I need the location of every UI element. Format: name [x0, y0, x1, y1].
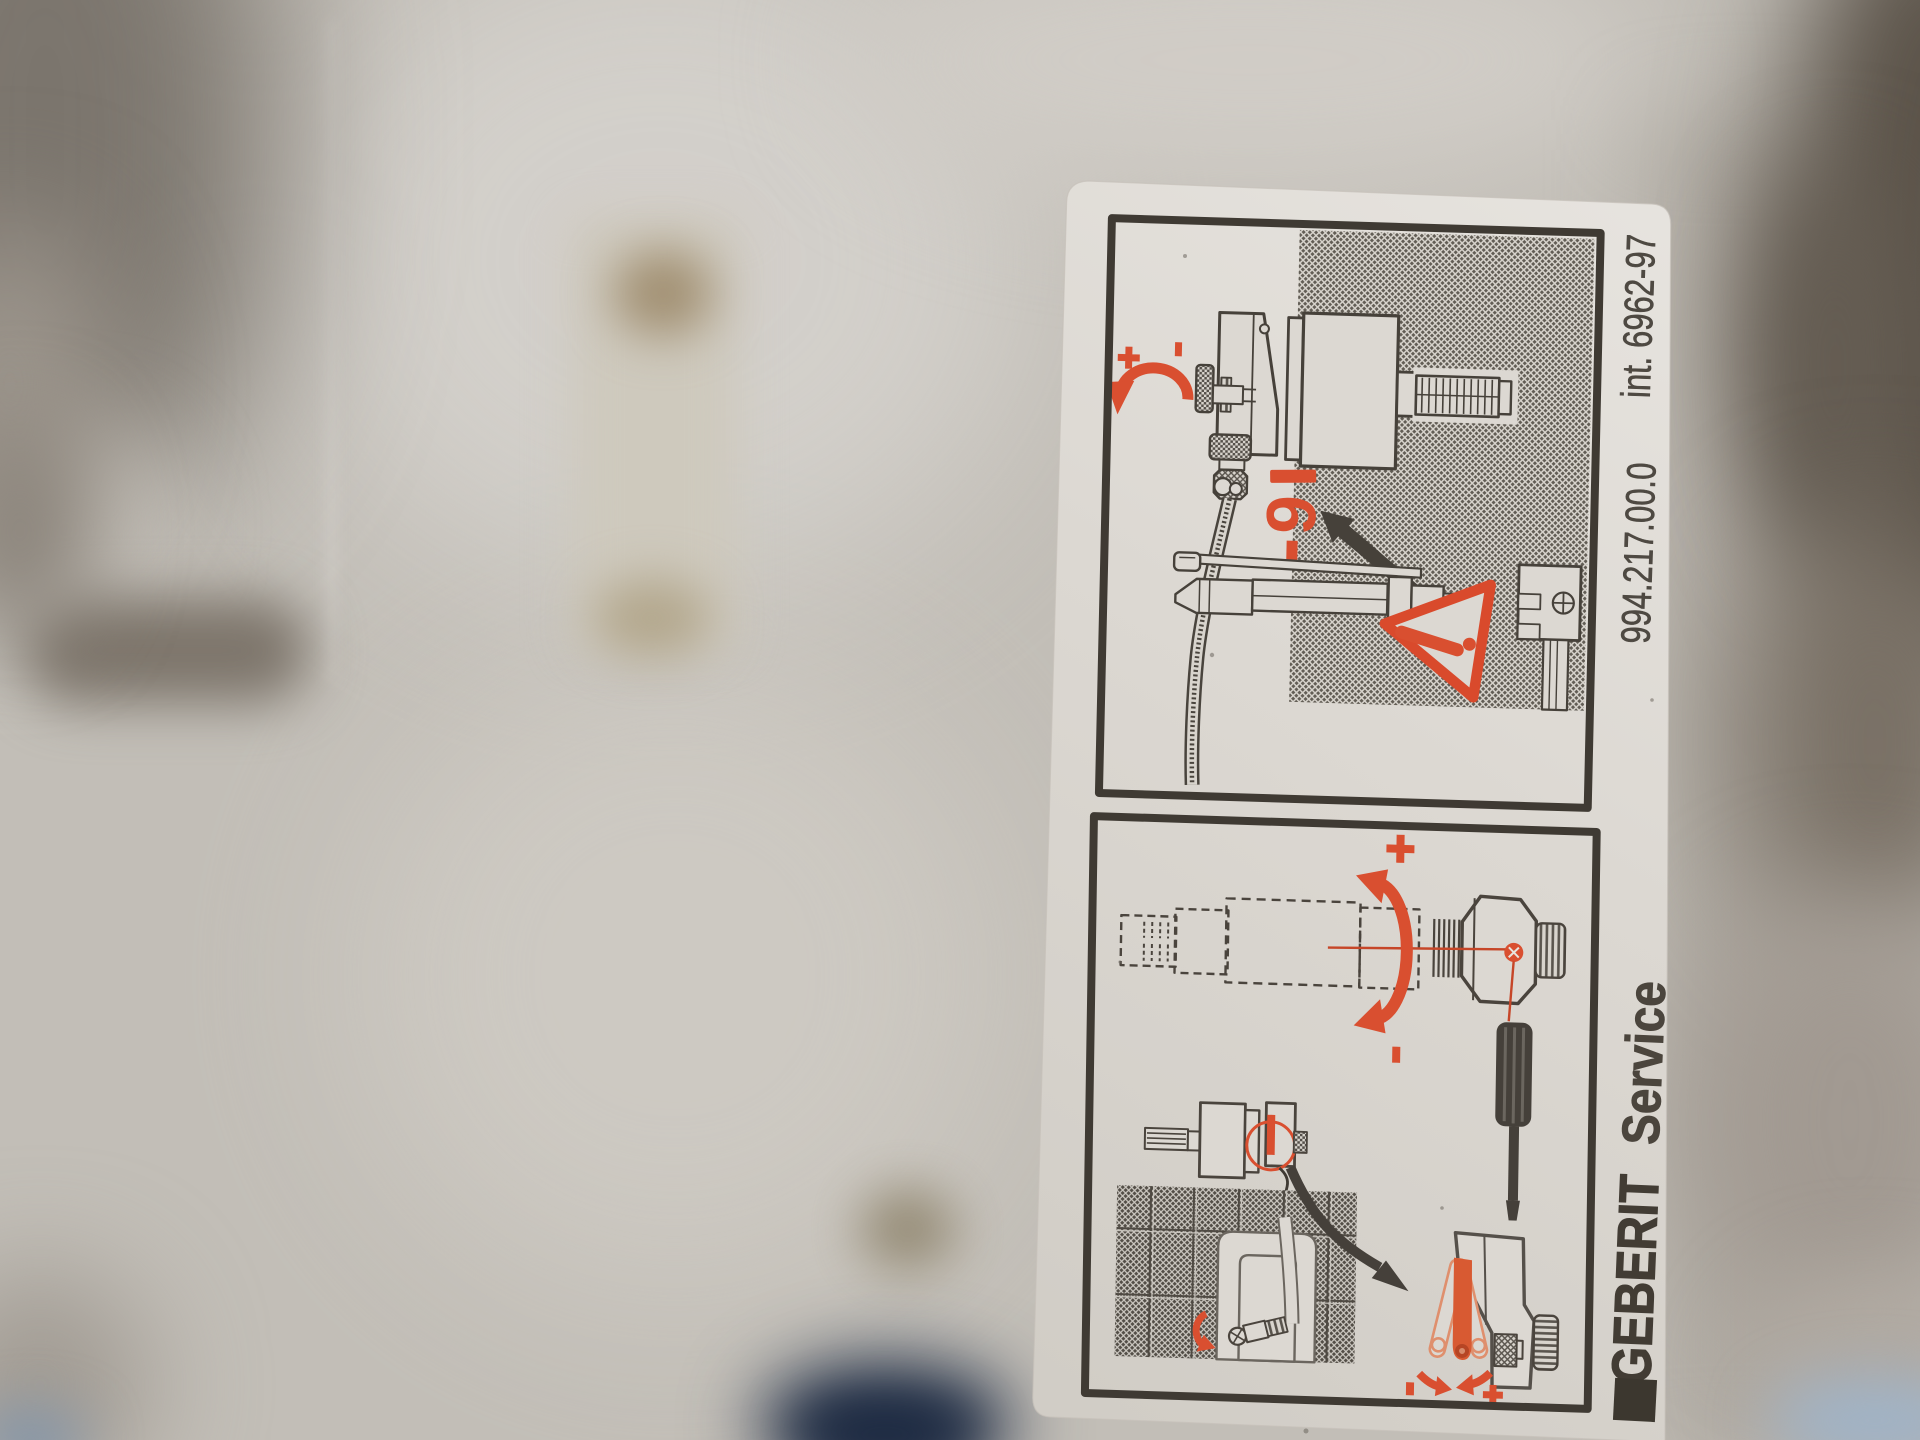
svg-text:Service: Service: [1611, 980, 1678, 1146]
svg-text:GEBERIT: GEBERIT: [1599, 1173, 1670, 1384]
svg-text:994.217.00.0: 994.217.00.0: [1612, 462, 1665, 644]
svg-text:int. 6962-97: int. 6962-97: [1612, 233, 1664, 398]
svg-text:9: 9: [1251, 493, 1331, 537]
